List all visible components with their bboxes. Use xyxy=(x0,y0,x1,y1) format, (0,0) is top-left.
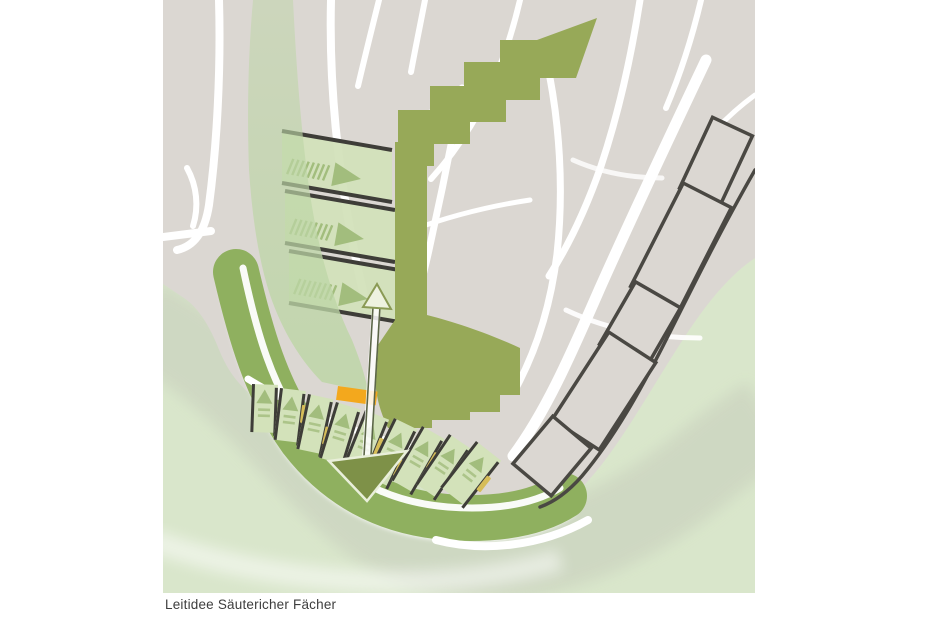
page: Leitidee Säutericher Fächer xyxy=(0,0,936,624)
map-caption: Leitidee Säutericher Fächer xyxy=(165,597,336,612)
fan-plot xyxy=(250,384,278,436)
concept-map xyxy=(163,0,755,593)
